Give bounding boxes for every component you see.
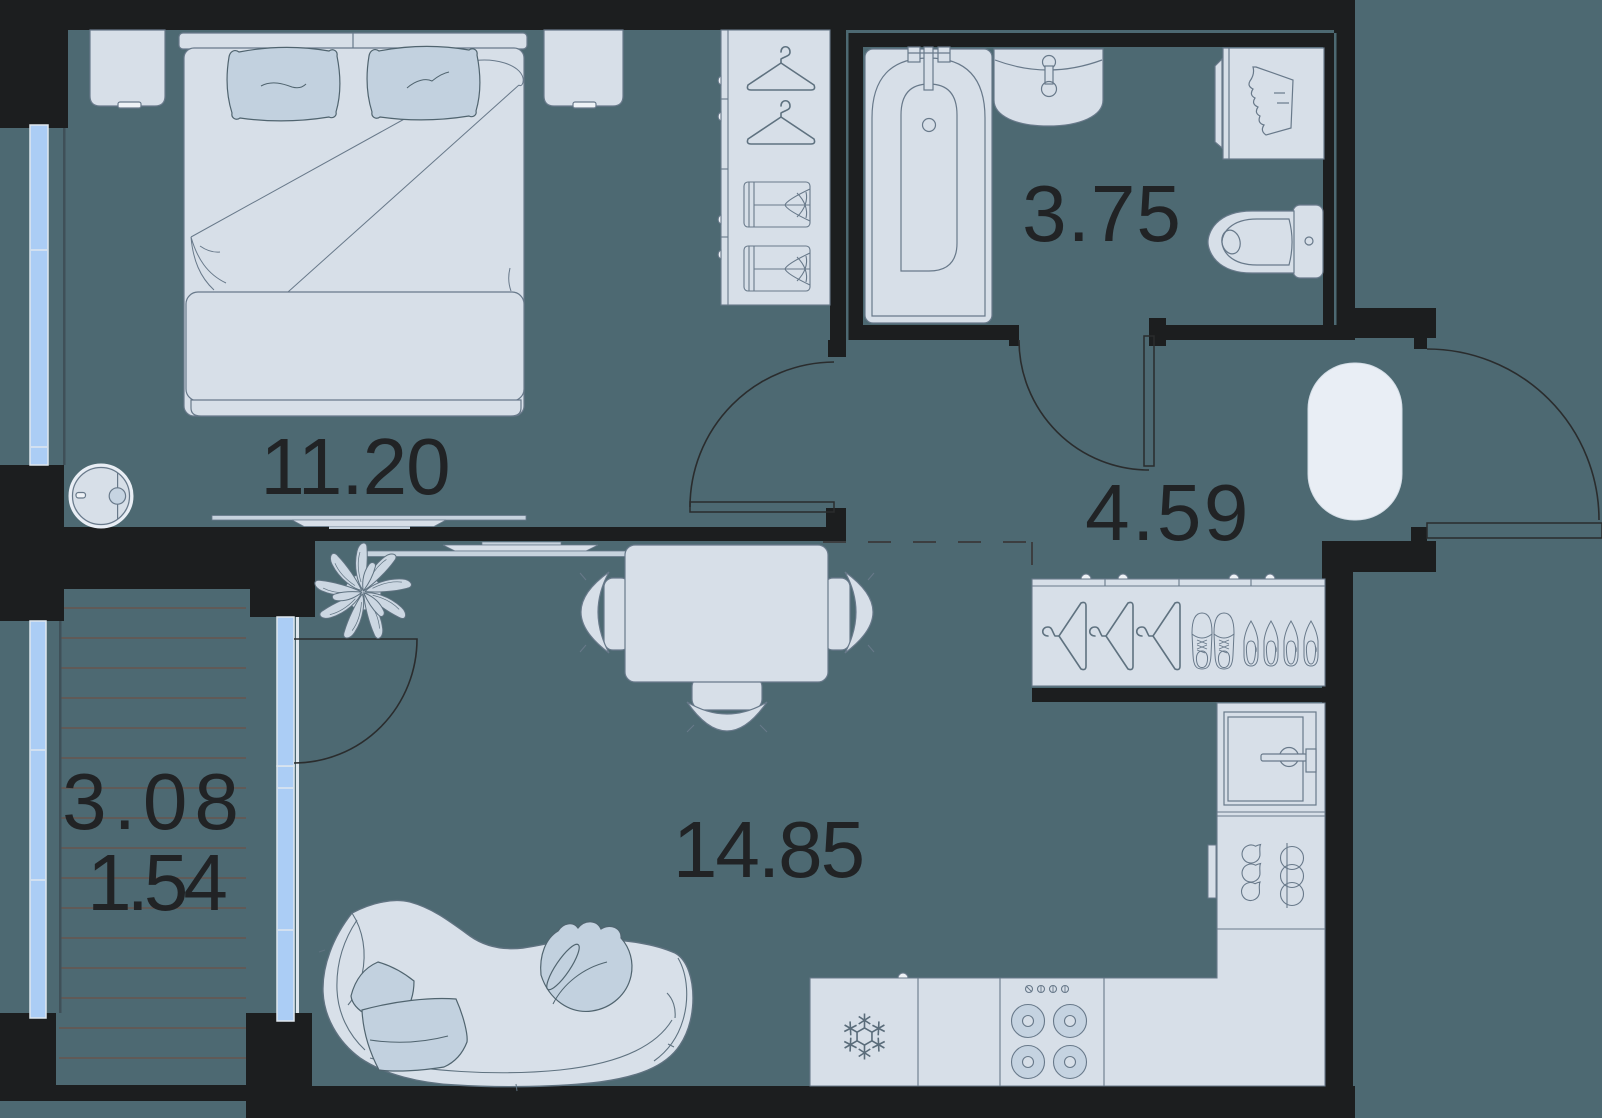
svg-text:3.75: 3.75 bbox=[1022, 169, 1182, 258]
svg-text:14.85: 14.85 bbox=[673, 805, 863, 894]
svg-text:3.08: 3.08 bbox=[62, 757, 246, 846]
svg-text:4.59: 4.59 bbox=[1085, 468, 1251, 557]
svg-text:11.20: 11.20 bbox=[260, 422, 449, 511]
svg-text:1.54: 1.54 bbox=[87, 838, 226, 927]
